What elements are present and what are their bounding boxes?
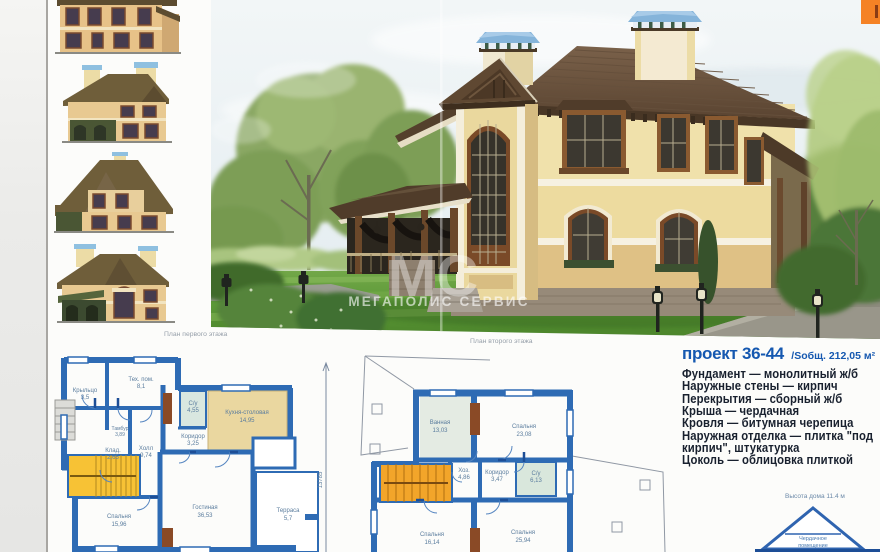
svg-text:Коридор: Коридор (485, 470, 509, 476)
svg-text:3,25: 3,25 (187, 441, 199, 447)
svg-text:Гостиная: Гостиная (192, 505, 217, 511)
svg-text:14,95: 14,95 (239, 418, 255, 424)
svg-text:Спальня: Спальня (107, 514, 131, 520)
svg-text:С/у: С/у (532, 471, 541, 477)
svg-text:9,74: 9,74 (140, 453, 152, 459)
svg-text:Коридор: Коридор (181, 434, 205, 440)
svg-text:С/у: С/у (189, 401, 198, 407)
svg-text:Чердачное: Чердачное (799, 536, 827, 542)
svg-text:13,03: 13,03 (432, 428, 448, 434)
svg-text:3,5: 3,5 (81, 395, 90, 401)
svg-text:помещение: помещение (798, 543, 828, 549)
svg-text:36,53: 36,53 (197, 513, 213, 519)
svg-text:5,7: 5,7 (284, 516, 293, 522)
svg-text:2,65: 2,65 (107, 455, 119, 461)
svg-text:13785: 13785 (318, 471, 324, 488)
svg-text:МЕГАПОЛИС СЕРВИС: МЕГАПОЛИС СЕРВИС (348, 294, 529, 309)
svg-text:Спальня: Спальня (512, 424, 536, 430)
svg-text:Крыльцо: Крыльцо (73, 388, 98, 394)
svg-text:3,89: 3,89 (115, 432, 125, 438)
svg-text:4,55: 4,55 (187, 408, 199, 414)
svg-text:16,14: 16,14 (424, 540, 440, 546)
svg-text:Спальня: Спальня (511, 530, 535, 536)
svg-text:Тех. пом.: Тех. пом. (128, 377, 154, 383)
svg-text:Клад.: Клад. (105, 448, 121, 454)
svg-text:Кухня-столовая: Кухня-столовая (225, 410, 269, 416)
svg-text:23,08: 23,08 (516, 432, 532, 438)
svg-text:6,13: 6,13 (530, 478, 542, 484)
svg-text:Ванная: Ванная (430, 420, 451, 426)
svg-text:3,47: 3,47 (491, 477, 503, 483)
svg-text:Терраса: Терраса (276, 508, 300, 514)
svg-text:Спальня: Спальня (420, 532, 444, 538)
svg-text:4,86: 4,86 (458, 475, 470, 481)
svg-text:Холл: Холл (139, 446, 154, 452)
svg-text:15,96: 15,96 (111, 522, 127, 528)
svg-text:25,94: 25,94 (515, 538, 531, 544)
svg-text:Хоз.: Хоз. (458, 468, 470, 474)
svg-text:8,1: 8,1 (137, 384, 146, 390)
